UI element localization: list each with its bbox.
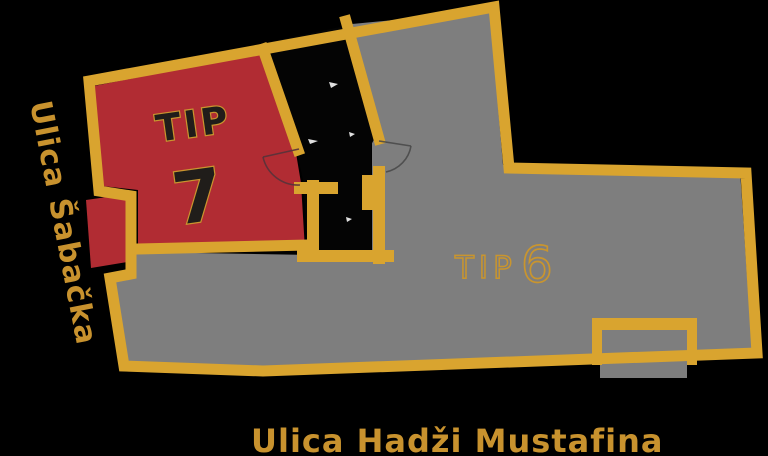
- balcony-frame-left: [592, 318, 602, 365]
- balcony-frame-top: [592, 318, 697, 330]
- tip-6-label-prefix: TIP: [454, 250, 517, 286]
- balcony-frame-right: [687, 318, 697, 365]
- street-label-bottom: Ulica Hadži Mustafina: [251, 422, 663, 456]
- floor-plan-stage: TIP 7 TIP 6 Ulica Šabačka Ulica Hadži Mu…: [0, 0, 768, 456]
- tip-6-label-number: 6: [521, 236, 553, 294]
- floor-plan-svg: TIP 7 TIP 6 Ulica Šabačka Ulica Hadži Mu…: [0, 0, 768, 456]
